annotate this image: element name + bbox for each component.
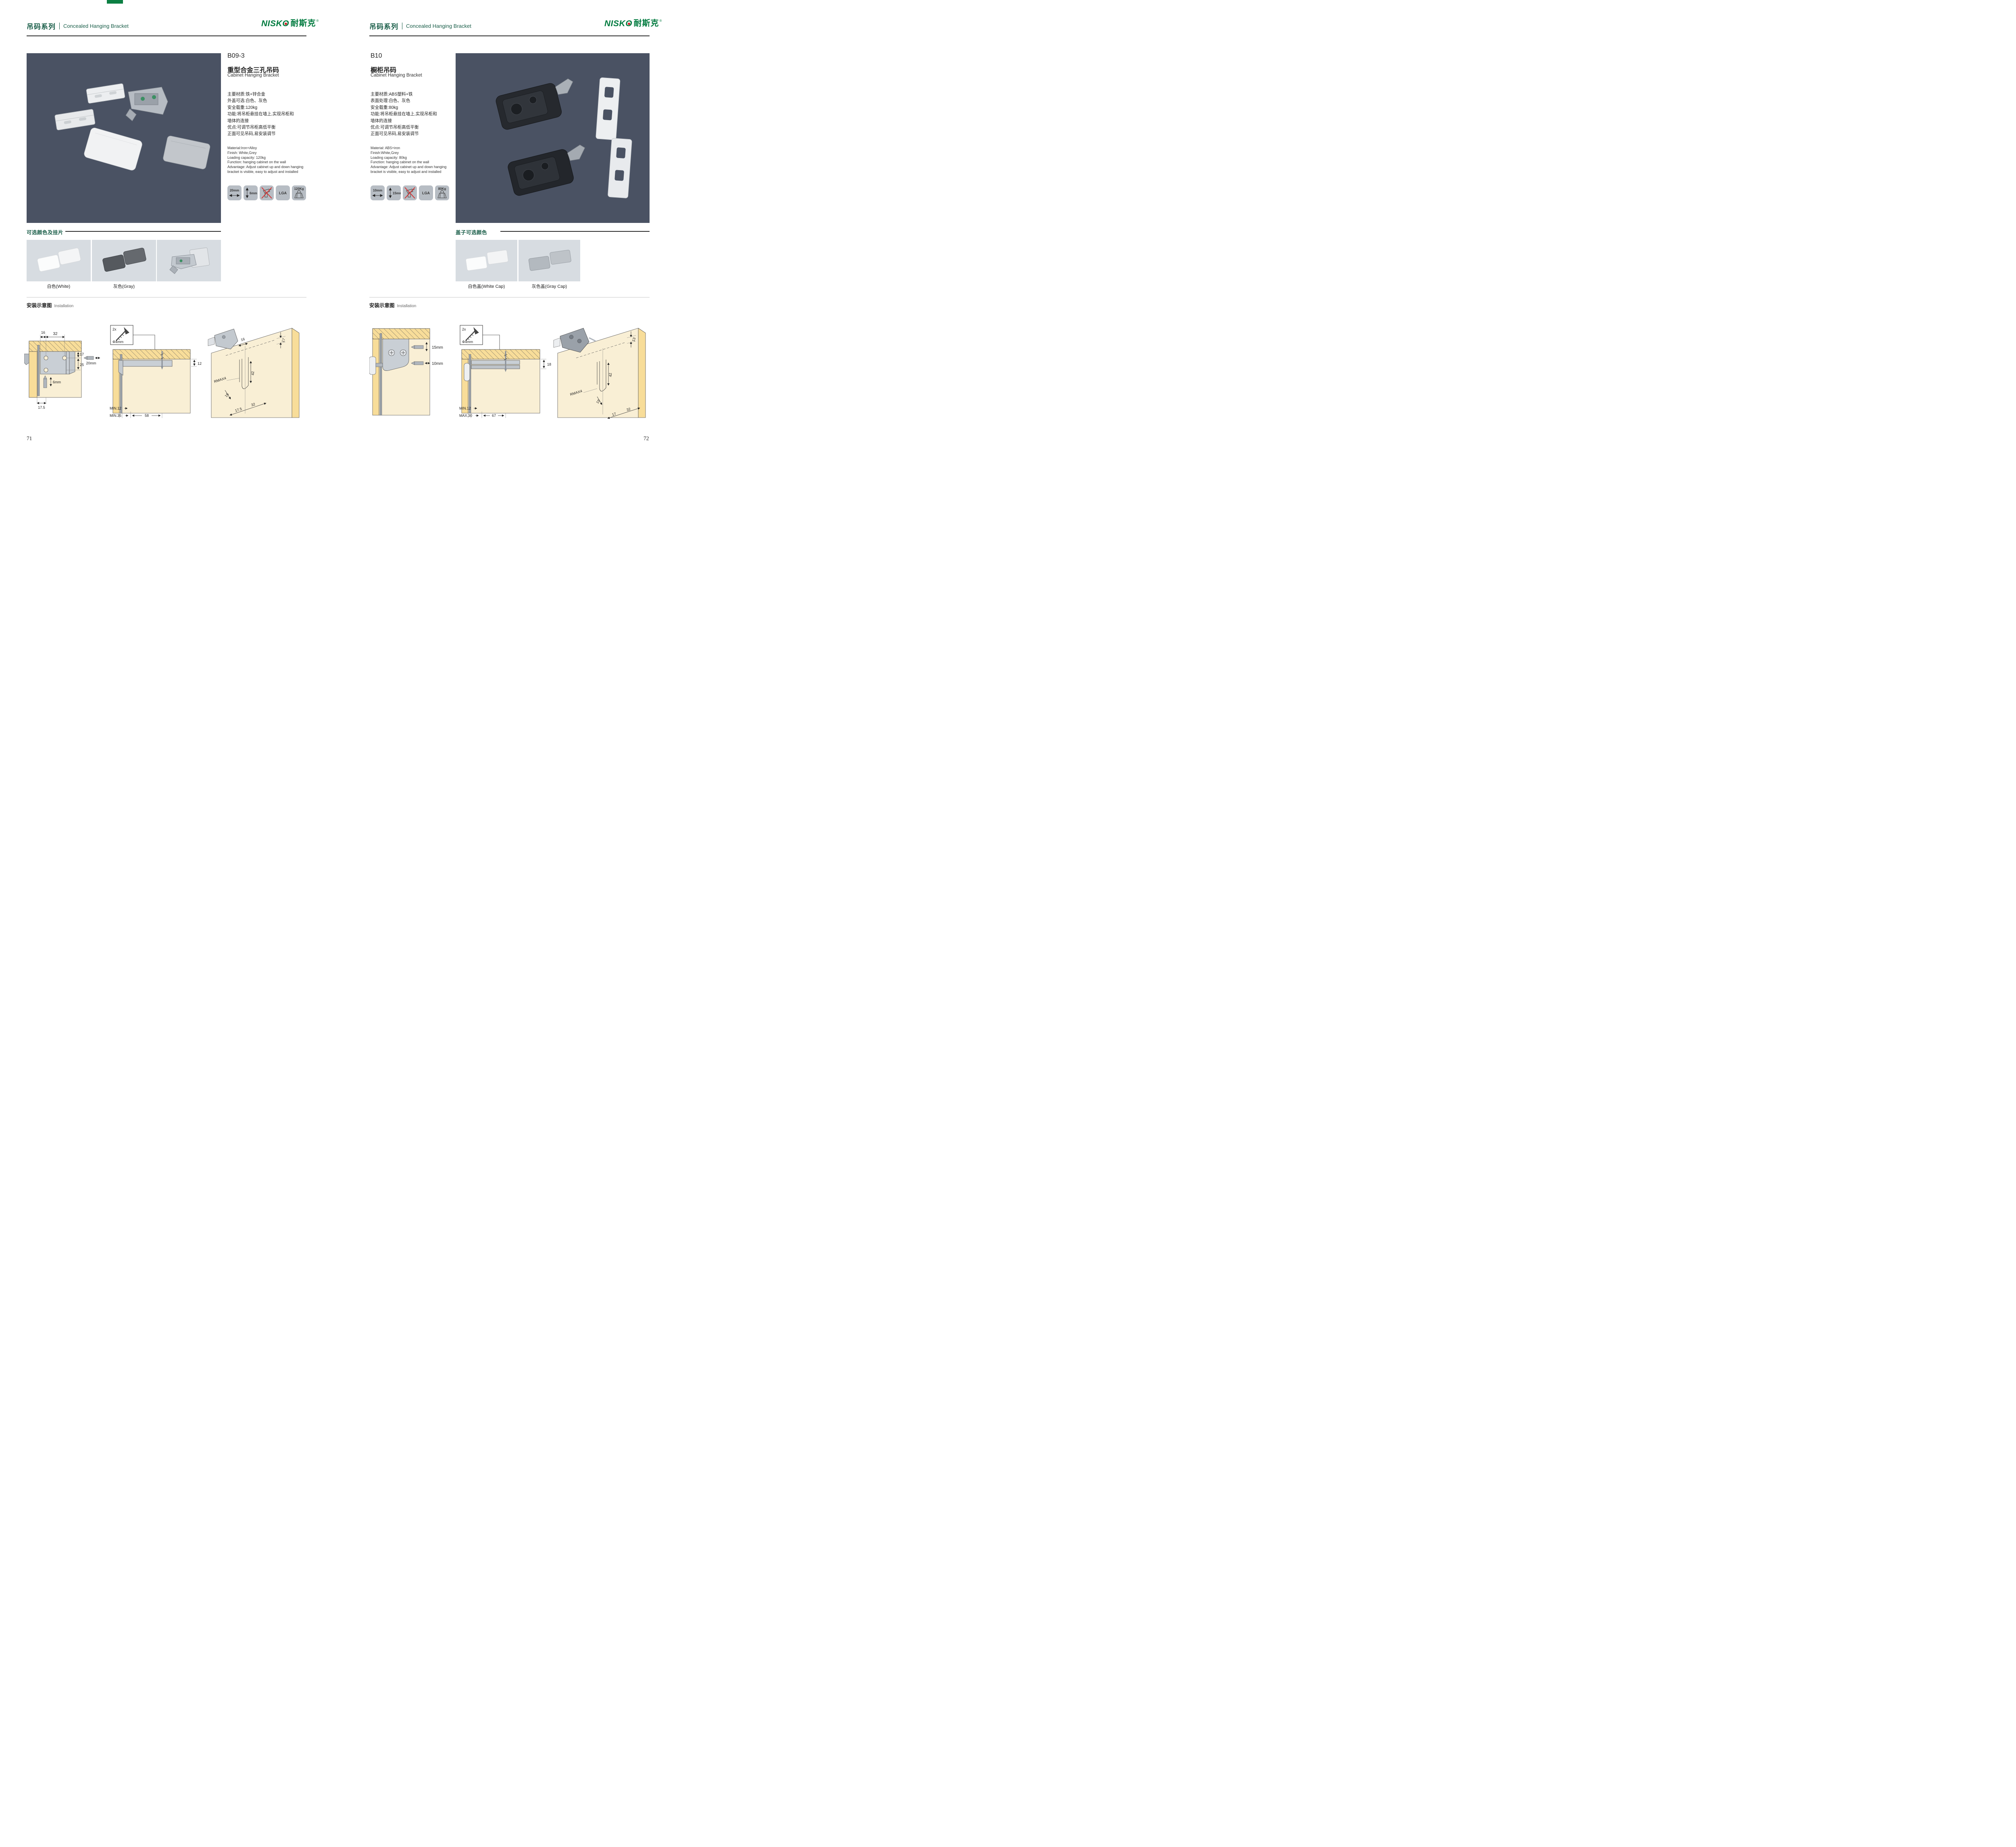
spec-line: 功能:将吊柜悬挂在墙上,实现吊柜和 (227, 111, 294, 117)
spec-line: 功能:将吊柜悬挂在墙上,实现吊柜和 (371, 111, 437, 117)
weight-icon (295, 191, 303, 198)
registered-mark-icon: ® (317, 19, 319, 23)
logo-cn: 耐斯克 (634, 19, 659, 27)
badge-load-label: 80Kg (438, 187, 446, 191)
spec-line: bracket is visible, easy to adjust and i… (227, 170, 303, 175)
badge-height-label: 6mm (250, 191, 257, 195)
spec-line: Loading capacity: 80kg (371, 156, 446, 160)
spec-line: Function: hanging cabinet on the wall (227, 160, 303, 165)
badge-lga: LGA (276, 185, 290, 200)
swatch-bracket (157, 240, 221, 281)
swatch-gray-cap (519, 240, 580, 281)
spec-line: 表面处理:白色、灰色 (371, 98, 437, 104)
spec-line: 优点:可调节吊柜高低平衡 (371, 124, 437, 131)
spec-line: 优点:可调节吊柜高低平衡 (227, 124, 294, 131)
specs-en: Material: ABS+iron Finish:White,Grey Loa… (371, 146, 446, 175)
badge-load-label: 120Kg (294, 187, 304, 191)
installation-heading-cn: 安装示意图 (369, 303, 395, 308)
badge-height-label: 15mm (393, 191, 401, 195)
registered-mark-icon: ® (660, 19, 662, 23)
product-name-en: Cabinet Hanging Bracket (227, 73, 279, 78)
hook-arm (376, 363, 383, 367)
swatch-caption-gray-cap: 灰色盖(Gray Cap) (519, 283, 580, 289)
white-caps-illustration (37, 248, 82, 272)
install-diagram-side-section: 16 32 17 25 20mm 6mm (24, 322, 103, 413)
svg-text:16: 16 (41, 331, 45, 335)
product-photo-b10 (456, 53, 650, 223)
installation-heading-en: Installation (54, 304, 74, 308)
svg-text:20mm: 20mm (86, 361, 96, 365)
svg-text:Φ4mm: Φ4mm (462, 340, 473, 344)
colors-section-rule (65, 231, 221, 232)
svg-text:42: 42 (608, 373, 612, 377)
page-header: 吊码系列 Concealed Hanging Bracket (27, 21, 129, 31)
svg-text:MAX.30: MAX.30 (459, 414, 472, 418)
swatch-caption-white-cap: 白色盖(White Cap) (456, 283, 517, 289)
badge-load: 120Kg (292, 185, 306, 200)
svg-text:18: 18 (547, 362, 551, 366)
install-diagram-rail-section: 2x Φ4mm 12 (110, 324, 208, 419)
catalog-spread: 吊码系列 Concealed Hanging Bracket NISKO 耐斯克… (0, 0, 676, 462)
section-divider (369, 297, 650, 297)
spec-line: Advantage: Adjust cabinet up and down ha… (227, 165, 303, 170)
svg-text:42: 42 (251, 371, 255, 375)
page-edge-tab (107, 0, 123, 4)
brand-logo: NISKO 耐斯克 ® (604, 19, 662, 28)
section-divider (27, 297, 306, 297)
install-diagram-perspective: 13 42 RMAX4 19 17 32 (552, 322, 653, 420)
svg-text:10mm: 10mm (432, 362, 443, 366)
swatch-caption-gray: 灰色(Gray) (92, 283, 156, 289)
installation-heading-en: Installation (397, 304, 417, 308)
page-number: 71 (27, 435, 32, 442)
series-title-en: Concealed Hanging Bracket (406, 23, 471, 29)
svg-text:Φ4mm: Φ4mm (112, 340, 123, 344)
photo-illustration (456, 53, 650, 223)
logo-o-with-dot: O (282, 19, 289, 28)
svg-text:67: 67 (492, 414, 496, 418)
svg-text:MIN.12: MIN.12 (459, 406, 471, 410)
series-title-en: Concealed Hanging Bracket (63, 23, 129, 29)
spec-line: 外盖可选:白色、灰色 (227, 98, 294, 104)
feature-badges: 20mm 6mm (227, 185, 306, 200)
weight-icon (438, 191, 446, 198)
svg-text:16: 16 (240, 337, 246, 342)
svg-text:6mm: 6mm (53, 380, 61, 384)
spec-line: 墙体的连接 (371, 118, 437, 124)
header-divider (402, 23, 402, 29)
logo-latin: NISK (604, 19, 625, 28)
phillips-screw-1 (389, 350, 395, 356)
swatch-gray (92, 240, 156, 281)
header-divider (59, 23, 60, 29)
specs-cn: 主要材质:铁+锌合金 外盖可选:白色、灰色 安全载重:120kg 功能:将吊柜悬… (227, 91, 294, 137)
spec-line: 安全载重:80kg (371, 104, 437, 111)
logo-latin: NISK (261, 19, 282, 28)
installation-heading: 安装示意图Installation (369, 301, 416, 309)
spec-line: Material:Iron+Alloy (227, 146, 303, 151)
svg-text:MIN.35: MIN.35 (110, 414, 121, 418)
colors-section-heading: 盖子可选颜色 (456, 228, 487, 236)
screw-bit-horizontal (84, 356, 100, 360)
badge-width: 20mm (227, 185, 242, 200)
red-cross-icon (405, 187, 415, 198)
svg-text:32: 32 (53, 332, 58, 336)
series-title-cn: 吊码系列 (369, 21, 398, 31)
photo-illustration (27, 53, 221, 223)
spec-line: 安全载重:120kg (227, 104, 294, 111)
spec-line: 墙体的连接 (227, 118, 294, 124)
badge-lga-label: LGA (422, 191, 430, 195)
series-title-cn: 吊码系列 (27, 21, 56, 31)
svg-text:2x: 2x (112, 327, 117, 331)
svg-text:2x: 2x (462, 327, 466, 331)
spec-line: 主要材质:铁+锌合金 (227, 91, 294, 98)
specs-cn: 主要材质:ABS塑料+铁 表面处理:白色、灰色 安全载重:80kg 功能:将吊柜… (371, 91, 437, 137)
product-photo-b09-3 (27, 53, 221, 223)
wall-cap (464, 363, 470, 381)
logo-cn: 耐斯克 (291, 19, 316, 27)
white-wall-plate-1 (596, 77, 620, 140)
installation-heading-cn: 安装示意图 (27, 303, 52, 308)
hanging-rail (123, 360, 172, 366)
svg-text:MIN.12: MIN.12 (110, 406, 121, 410)
badge-width: 10mm (371, 185, 385, 200)
page-72: 吊码系列 Concealed Hanging Bracket NISKO 耐斯克… (338, 0, 676, 462)
logo-o-with-dot: O (625, 19, 632, 28)
svg-text:12: 12 (198, 362, 202, 366)
header-rule (27, 35, 306, 36)
badge-lga-label: LGA (279, 191, 287, 195)
install-diagram-rail-section: 2x Φ4mm 18 (459, 324, 558, 419)
specs-en: Material:Iron+Alloy Finish: White,Grey L… (227, 146, 303, 175)
svg-text:17: 17 (80, 352, 84, 356)
swatch-white-cap (456, 240, 517, 281)
install-diagram-adjustment: 15mm 10mm (369, 324, 448, 419)
svg-text:58: 58 (145, 414, 149, 418)
badge-height: 6mm (244, 185, 258, 200)
rail-bar-1 (471, 360, 520, 364)
spec-line: Finish:White,Grey (371, 151, 446, 156)
badge-no-drill (403, 185, 417, 200)
wall-hook (24, 354, 29, 365)
installation-heading: 安装示意图Installation (27, 301, 73, 309)
badge-load: 80Kg (435, 185, 449, 200)
svg-text:25: 25 (80, 363, 84, 367)
phillips-screw-2 (400, 350, 406, 356)
badge-width-label: 10mm (373, 189, 382, 192)
product-code: B09-3 (227, 52, 245, 60)
svg-text:17.5: 17.5 (38, 406, 45, 410)
white-caps-illustration (465, 250, 509, 271)
rail-bar-2 (471, 365, 520, 369)
wall-cap (369, 357, 376, 374)
white-wall-plate-2 (608, 138, 632, 198)
page-header: 吊码系列 Concealed Hanging Bracket (369, 21, 471, 31)
spec-line: Advantage: Adjust cabinet up and down ha… (371, 165, 446, 170)
colors-section-heading: 可选颜色及挂片 (27, 228, 63, 236)
spec-line: Loading capacity: 120kg (227, 156, 303, 160)
spec-line: 正面可见吊码,易安装调节 (227, 131, 294, 137)
product-name-en: Cabinet Hanging Bracket (371, 73, 422, 78)
badge-width-label: 20mm (230, 189, 239, 192)
red-cross-icon (262, 187, 272, 198)
colors-section-rule (500, 231, 650, 232)
page-71: 吊码系列 Concealed Hanging Bracket NISKO 耐斯克… (0, 0, 338, 462)
page-number: 72 (644, 435, 649, 442)
gray-caps-illustration (528, 250, 572, 271)
header-rule (369, 35, 650, 36)
gray-caps-illustration (102, 248, 147, 272)
badge-height: 15mm (387, 185, 401, 200)
brand-logo: NISKO 耐斯克 ® (261, 19, 319, 28)
spec-line: Finish: White,Grey (227, 151, 303, 156)
metal-bracket-illustration (170, 248, 210, 274)
install-diagram-perspective: 16 17 42 RMAX4 16 17.5 32 (206, 322, 306, 420)
swatch-caption-white: 白色(White) (27, 283, 91, 289)
spec-line: Material: ABS+iron (371, 146, 446, 151)
spec-line: bracket is visible, easy to adjust and i… (371, 170, 446, 175)
spec-line: 主要材质:ABS塑料+铁 (371, 91, 437, 98)
badge-lga: LGA (419, 185, 433, 200)
feature-badges: 10mm 15mm (371, 185, 449, 200)
spec-line: 正面可见吊码,易安装调节 (371, 131, 437, 137)
badge-no-drill (260, 185, 274, 200)
spec-line: Function: hanging cabinet on the wall (371, 160, 446, 165)
swatch-white (27, 240, 91, 281)
svg-text:15mm: 15mm (432, 345, 443, 350)
product-code: B10 (371, 52, 382, 60)
